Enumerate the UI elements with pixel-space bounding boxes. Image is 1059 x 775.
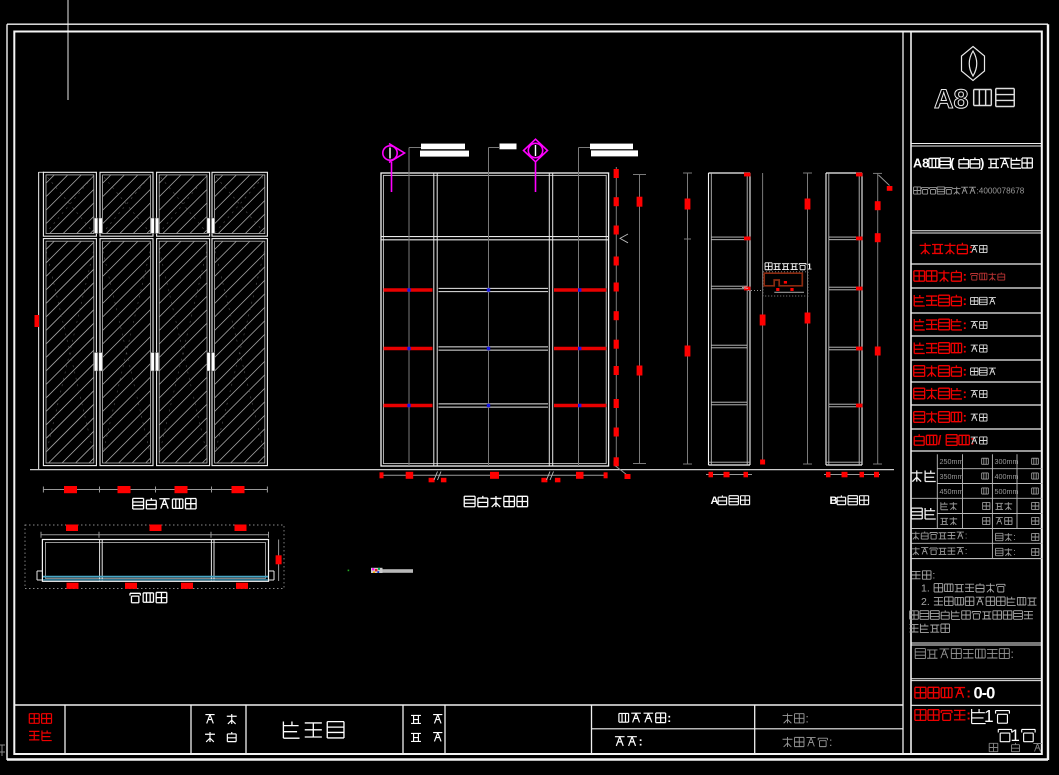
svg-text:A8: A8 — [934, 84, 969, 114]
svg-text::: : — [963, 386, 967, 401]
svg-text::: : — [963, 363, 967, 378]
svg-text:500mm: 500mm — [995, 487, 1019, 496]
svg-text:B: B — [830, 495, 838, 507]
svg-text::: : — [829, 737, 832, 749]
svg-text::: : — [806, 713, 809, 725]
svg-text:2.: 2. — [921, 596, 930, 608]
svg-text:/: / — [938, 432, 942, 447]
svg-text:1: 1 — [984, 706, 994, 726]
svg-text:0-0: 0-0 — [974, 684, 996, 702]
svg-text::: : — [966, 708, 970, 723]
svg-text:A8: A8 — [913, 156, 929, 170]
svg-text:A: A — [711, 495, 719, 507]
svg-text::: : — [963, 340, 967, 355]
svg-text::: : — [970, 432, 974, 447]
svg-text::4000078678: :4000078678 — [977, 186, 1025, 195]
svg-text::: : — [963, 409, 967, 424]
svg-text::: : — [1011, 647, 1014, 661]
svg-text:450mm: 450mm — [940, 487, 964, 496]
svg-text:1.: 1. — [921, 582, 930, 594]
svg-text::: : — [965, 531, 968, 541]
svg-text:400mm: 400mm — [995, 472, 1019, 481]
svg-text:1: 1 — [1011, 726, 1020, 745]
svg-text::: : — [963, 268, 967, 283]
svg-text::: : — [969, 241, 973, 256]
svg-text:): ) — [980, 156, 984, 170]
svg-text::: : — [966, 685, 970, 700]
svg-text::: : — [639, 734, 643, 748]
svg-text::: : — [932, 570, 935, 582]
svg-text::: : — [963, 293, 967, 308]
svg-text:300mm: 300mm — [995, 457, 1019, 466]
svg-text:350mm: 350mm — [940, 472, 964, 481]
svg-text::: : — [667, 711, 671, 725]
svg-text:250mm: 250mm — [940, 457, 964, 466]
svg-text::: : — [1013, 547, 1015, 557]
svg-text::: : — [965, 546, 968, 556]
svg-text::: : — [963, 317, 967, 332]
svg-text::: : — [1013, 532, 1015, 542]
